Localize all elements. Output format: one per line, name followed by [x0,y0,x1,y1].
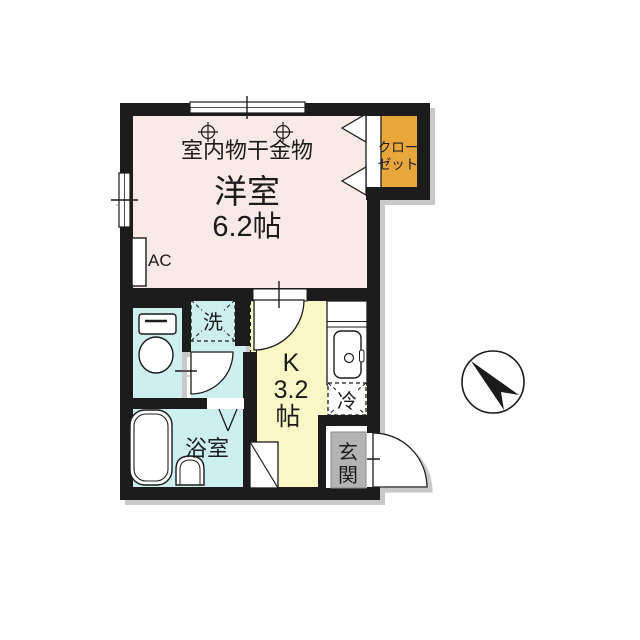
entrance-door-swing [373,433,427,487]
kitchen-size-unit-label: 帖 [275,403,300,431]
bathroom-door-opening [207,398,244,409]
bathtub-icon [130,410,172,485]
sink-drain-icon [345,354,354,363]
kitchen-label: K [283,349,300,377]
compass-north-icon [462,351,524,413]
apartment-plan: 室内物干金物 洋室 6.2帖 AC クロー ゼット 洗 K 3.2 帖 冷 浴室… [111,96,430,500]
entrance-label-char2: 関 [338,465,358,487]
bathroom-label: 浴室 [185,436,229,461]
kitchen-door-opening [253,289,307,301]
wall-washroom-bathroom [133,398,207,409]
wall-entrance-top [318,415,367,426]
wall-bottom [120,487,380,500]
ac-unit-icon [132,238,146,286]
laundry-hardware-label: 室内物干金物 [181,138,313,163]
wall-toilet-top [133,301,182,308]
wall-closet-right [417,103,430,200]
washer-label: 洗 [203,311,223,334]
entrance-label-char1: 玄 [338,441,358,464]
closet-label-line1: クロー [378,140,419,155]
main-room-name-label: 洋室 [214,173,280,210]
ac-label: AC [148,251,172,270]
kitchen-counter [327,301,367,385]
main-room-size-label: 6.2帖 [212,210,281,243]
wall-washer-right [235,289,250,346]
fridge-label: 冷 [337,390,357,413]
floor-plan-drawing: 室内物干金物 洋室 6.2帖 AC クロー ゼット 洗 K 3.2 帖 冷 浴室… [0,0,640,640]
closet-label-line2: ゼット [378,157,419,172]
wall-toilet-washroom [182,301,191,352]
entrance-step-icon [250,442,278,488]
floor-plan-page: 室内物干金物 洋室 6.2帖 AC クロー ゼット 洗 K 3.2 帖 冷 浴室… [0,0,640,640]
kitchen-size-label: 3.2 [274,376,309,404]
faucet-icon [360,350,365,362]
wall-entrance-stub [318,426,326,488]
